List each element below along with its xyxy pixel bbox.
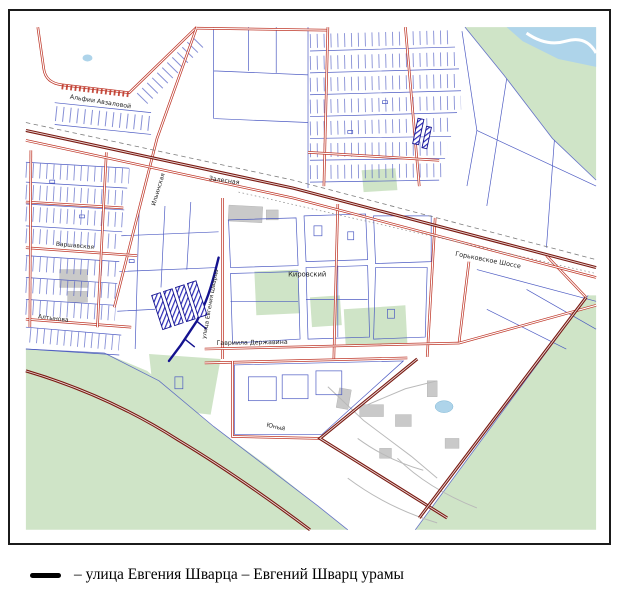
map-label-kirovskiy: Кировский xyxy=(288,271,326,279)
legend: – улица Евгения Шварца – Евгений Шварц у… xyxy=(30,566,404,584)
map-frame: Альфии АвзаловойЗалеснаяГорьковское Шосс… xyxy=(8,9,611,545)
highlighted-street-line-icon xyxy=(30,573,61,578)
map-label-gavriila-derzhavina: Гавриила Державина xyxy=(217,339,288,347)
legend-text: – улица Евгения Шварца – Евгений Шварц у… xyxy=(74,566,404,584)
city-map: Альфии АвзаловойЗалеснаяГорьковское Шосс… xyxy=(10,11,609,543)
